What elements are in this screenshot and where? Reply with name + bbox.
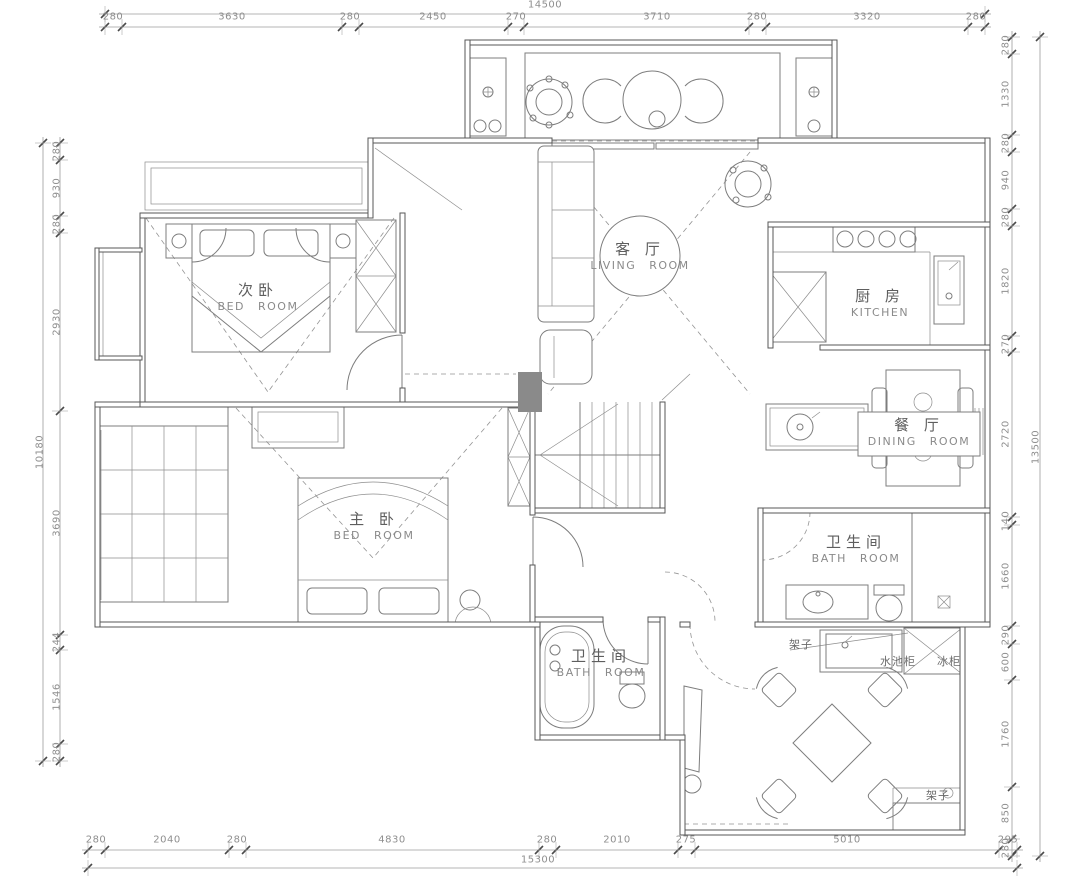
- dim-label: 3710: [643, 12, 670, 23]
- room-name-en: BATH ROOM: [557, 667, 646, 680]
- room-label-secondary-bedroom: 次卧 BED ROOM: [218, 282, 299, 314]
- dim-label: 1760: [1001, 720, 1012, 747]
- dim-label: 850: [1001, 803, 1012, 824]
- room-name-zh: 餐 厅: [868, 417, 970, 434]
- room-name-zh: 客 厅: [590, 241, 689, 258]
- room-label-living-room: 客 厅 LIVING ROOM: [590, 241, 689, 273]
- dim-label: 3320: [853, 12, 880, 23]
- dim-label: 940: [1001, 170, 1012, 191]
- dim-label: 290: [1001, 625, 1012, 646]
- room-name-en: BED ROOM: [334, 530, 415, 543]
- dim-label: 10180: [35, 435, 46, 469]
- room-label-lower-bathroom: 卫生间 BATH ROOM: [557, 648, 646, 680]
- dim-label: 280: [340, 12, 361, 23]
- dim-label: 280: [52, 214, 63, 235]
- room-name-en: BED ROOM: [218, 301, 299, 314]
- room-label-master-bedroom: 主 卧 BED ROOM: [334, 511, 415, 543]
- room-name-en: BATH ROOM: [812, 553, 901, 566]
- dim-label: 1820: [1001, 267, 1012, 294]
- room-label-dining-room: 餐 厅 DINING ROOM: [868, 417, 970, 449]
- dim-label: 14500: [528, 0, 562, 11]
- dim-label: 15300: [521, 855, 555, 866]
- dim-label: 3630: [218, 12, 245, 23]
- room-name-zh: 次卧: [218, 282, 299, 299]
- dim-label: 930: [52, 178, 63, 199]
- dim-label: 280: [537, 835, 558, 846]
- dim-label: 244: [52, 632, 63, 653]
- room-label-kitchen: 厨 房 KITCHEN: [851, 288, 909, 320]
- room-name-zh: 卫生间: [557, 648, 646, 665]
- dim-label: 2450: [419, 12, 446, 23]
- dim-label: 280: [966, 12, 987, 23]
- dim-label: 3690: [52, 509, 63, 536]
- dim-label: 1546: [52, 683, 63, 710]
- dim-label: 280: [1001, 35, 1012, 56]
- room-name-en: LIVING ROOM: [590, 260, 689, 273]
- dim-label: 270: [1001, 334, 1012, 355]
- dim-label: 280: [1001, 838, 1012, 859]
- dim-label: 2010: [603, 835, 630, 846]
- dim-label: 280: [103, 12, 124, 23]
- dim-label: 2720: [1001, 420, 1012, 447]
- dim-label: 1660: [1001, 562, 1012, 589]
- room-name-zh: 卫生间: [812, 534, 901, 551]
- dim-label: 280: [86, 835, 107, 846]
- dim-label: 600: [1001, 652, 1012, 673]
- annotation-shelf-top: 架子: [789, 636, 813, 652]
- annotation-freezer: 冰柜: [937, 653, 961, 669]
- annotation-sink-cabinet: 水池柜: [880, 653, 916, 669]
- dim-label: 4830: [378, 835, 405, 846]
- dim-label: 13500: [1031, 430, 1042, 464]
- floor-plan-canvas: 次卧 BED ROOM 客 厅 LIVING ROOM 厨 房 KITCHEN …: [0, 0, 1080, 882]
- room-name-en: DINING ROOM: [868, 436, 970, 449]
- dim-label: 5010: [833, 835, 860, 846]
- annotation-shelf-bottom: 架子: [926, 787, 950, 803]
- room-name-zh: 主 卧: [334, 511, 415, 528]
- dim-label: 280: [747, 12, 768, 23]
- room-name-en: KITCHEN: [851, 307, 909, 320]
- room-label-right-bathroom: 卫生间 BATH ROOM: [812, 534, 901, 566]
- dim-label: 280: [1001, 207, 1012, 228]
- dim-label: 275: [676, 835, 697, 846]
- dim-label: 280: [52, 742, 63, 763]
- dim-label: 1330: [1001, 80, 1012, 107]
- dim-label: 140: [1001, 511, 1012, 532]
- dim-label: 2930: [52, 308, 63, 335]
- dim-label: 280: [52, 141, 63, 162]
- dim-label: 280: [1001, 133, 1012, 154]
- room-name-zh: 厨 房: [851, 288, 909, 305]
- dim-label: 2040: [153, 835, 180, 846]
- dim-label: 270: [506, 12, 527, 23]
- dim-label: 280: [227, 835, 248, 846]
